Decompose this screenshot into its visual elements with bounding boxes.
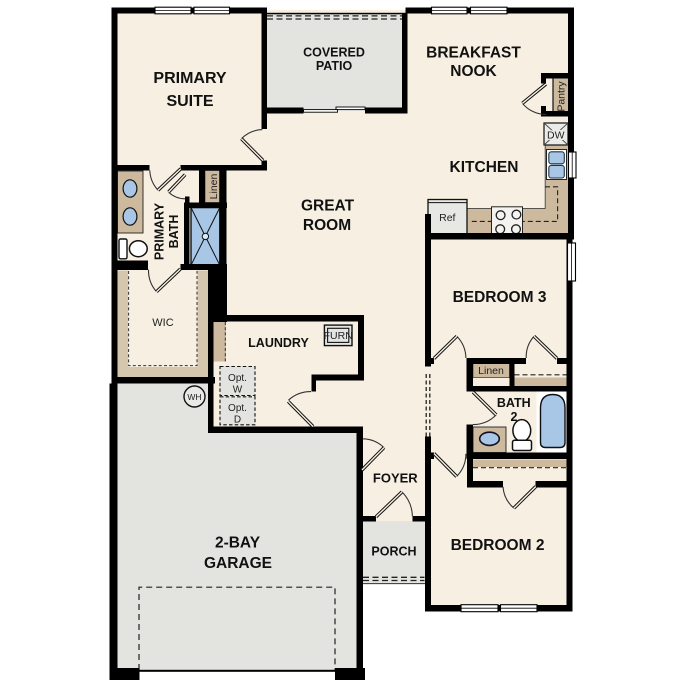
svg-text:PORCH: PORCH: [371, 545, 416, 559]
svg-text:PRIMARY: PRIMARY: [153, 70, 227, 87]
svg-text:NOOK: NOOK: [450, 63, 497, 80]
svg-text:COVERED: COVERED: [303, 46, 365, 60]
svg-text:WIC: WIC: [152, 317, 173, 329]
svg-text:W: W: [233, 385, 243, 396]
svg-text:FURN: FURN: [324, 330, 353, 342]
svg-text:KITCHEN: KITCHEN: [450, 159, 519, 176]
svg-text:BREAKFAST: BREAKFAST: [426, 45, 521, 62]
svg-text:Ref: Ref: [439, 212, 455, 224]
svg-text:BATH: BATH: [167, 215, 181, 249]
svg-text:2-BAY: 2-BAY: [215, 535, 261, 552]
svg-text:Linen: Linen: [478, 365, 504, 377]
svg-text:GARAGE: GARAGE: [204, 555, 272, 572]
svg-text:DW: DW: [547, 129, 565, 141]
svg-text:GREAT: GREAT: [301, 198, 355, 215]
svg-text:PRIMARY: PRIMARY: [152, 202, 166, 260]
svg-text:BEDROOM 3: BEDROOM 3: [453, 289, 547, 306]
svg-text:BEDROOM 2: BEDROOM 2: [451, 537, 545, 554]
svg-text:PATIO: PATIO: [316, 59, 353, 73]
svg-text:Pantry: Pantry: [555, 81, 567, 112]
svg-text:BATH: BATH: [497, 396, 531, 410]
svg-text:FOYER: FOYER: [373, 471, 418, 486]
svg-text:2: 2: [511, 410, 518, 424]
svg-text:ROOM: ROOM: [303, 217, 351, 234]
svg-text:WH: WH: [187, 392, 201, 402]
svg-text:Opt.: Opt.: [228, 403, 247, 414]
svg-text:LAUNDRY: LAUNDRY: [248, 336, 309, 350]
svg-text:Opt.: Opt.: [228, 373, 247, 384]
svg-text:D: D: [234, 415, 241, 426]
svg-text:SUITE: SUITE: [166, 93, 213, 110]
svg-text:Linen: Linen: [208, 174, 220, 200]
